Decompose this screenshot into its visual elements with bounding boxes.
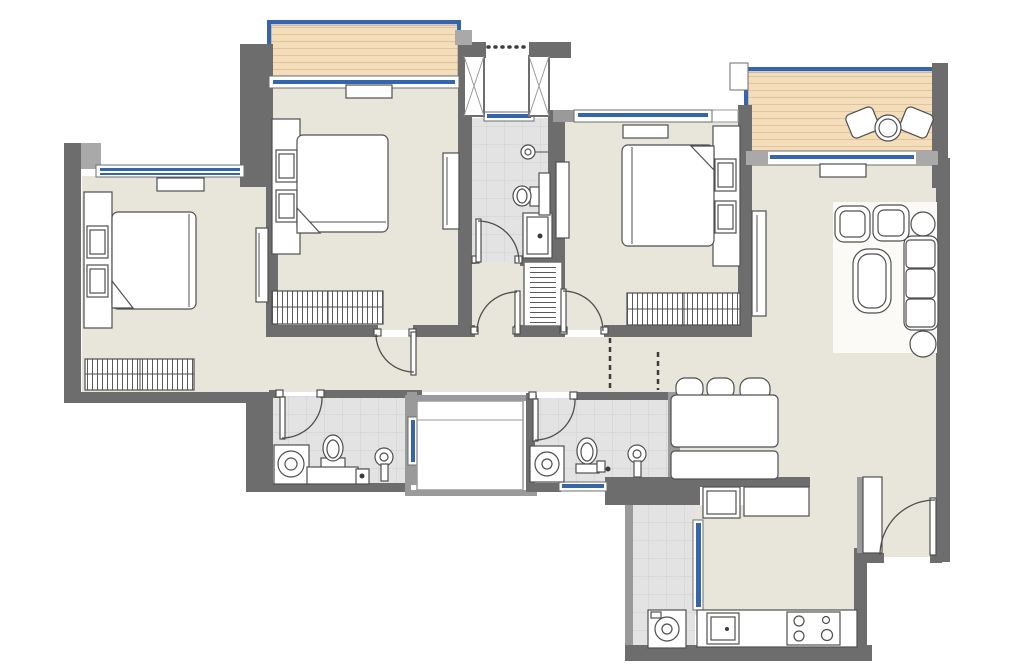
bedroom1-window-glass bbox=[100, 168, 240, 171]
hallway-floor bbox=[266, 337, 612, 392]
kitchen-sink-drain bbox=[725, 627, 729, 631]
door-jamb-bedroom2-a bbox=[374, 329, 381, 336]
bedroom1-headboard-ledge bbox=[157, 178, 204, 191]
centerbox-bottom-wall bbox=[405, 490, 537, 496]
right-bathroom-window-glass bbox=[562, 484, 604, 488]
coffee-table bbox=[853, 249, 891, 313]
door-jamb-bedroom3-b bbox=[601, 327, 608, 334]
right-bath-toilet-tank bbox=[576, 464, 599, 473]
left-bath-counter bbox=[307, 467, 358, 484]
leftbath-door-leaf bbox=[280, 397, 285, 439]
bedroom1-window-glass2 bbox=[100, 173, 240, 175]
door-jamb-leftbath-b bbox=[317, 390, 324, 397]
left-bathroom-west-wall bbox=[246, 392, 273, 490]
balcony2-railing-top bbox=[744, 67, 936, 71]
bedroom2-bed-platform bbox=[272, 119, 300, 254]
balcony2-left-stub bbox=[730, 63, 748, 90]
kitchen-hob bbox=[787, 612, 840, 645]
bedroom2-south-wall bbox=[266, 325, 378, 337]
left-bath-side-box-dot bbox=[360, 474, 365, 479]
balcony1-right-pillar bbox=[455, 30, 472, 45]
bedroom1-south-wall bbox=[64, 392, 248, 403]
kitchen-floor bbox=[695, 505, 857, 615]
centerbox-glass bbox=[411, 420, 415, 462]
living-window-ledge bbox=[820, 164, 866, 177]
dining-bench bbox=[671, 451, 778, 479]
kitchen-north-wall-block bbox=[605, 477, 700, 505]
bedroom3-headboard-ledge bbox=[623, 125, 668, 138]
balcony1-wood-floor bbox=[271, 25, 458, 78]
bedroom3-door-leaf bbox=[561, 289, 566, 332]
utility-washing-machine bbox=[648, 610, 686, 648]
bedroom2-tall-cabinet bbox=[443, 153, 459, 229]
bedroom3-south-wall bbox=[604, 325, 752, 337]
foyer-shoe-cabinet bbox=[863, 477, 882, 553]
right-bathroom-north-wall bbox=[573, 392, 675, 400]
right-bath-sink-pedestal bbox=[634, 461, 641, 477]
bedroom3-lintel bbox=[710, 110, 738, 122]
bedroom3-window-glass bbox=[578, 113, 708, 117]
bedroom1-door-panel bbox=[256, 228, 268, 302]
living-east-wall bbox=[936, 158, 950, 562]
door-jamb-rightbath-b bbox=[570, 392, 577, 399]
bedroom3-window-west-stub bbox=[553, 110, 576, 122]
sofa bbox=[904, 236, 938, 330]
floor-plan bbox=[0, 0, 1017, 670]
shaft-window-glass bbox=[487, 114, 531, 118]
refrigerator bbox=[703, 487, 740, 518]
bedroom2-bed bbox=[297, 135, 388, 232]
balcony1-railing-top bbox=[267, 20, 461, 24]
top-bath-vanity-tap bbox=[538, 234, 543, 239]
right-bathroom-south-wall-a bbox=[526, 483, 561, 492]
top-bath-counter bbox=[539, 173, 550, 215]
rightbath-door-leaf bbox=[533, 399, 538, 441]
bedroom1-bed-platform bbox=[84, 192, 112, 328]
left-bath-toilet-bowl bbox=[323, 435, 343, 461]
main-entry-door-leaf bbox=[930, 498, 936, 555]
living-window-glass bbox=[770, 155, 914, 159]
bedroom3-tall-cabinet bbox=[556, 162, 569, 238]
utility-west-wall bbox=[625, 505, 633, 647]
dining-table bbox=[671, 395, 778, 447]
right-bath-accessory bbox=[597, 461, 605, 472]
tv-unit bbox=[752, 211, 766, 316]
right-bath-sink bbox=[628, 445, 646, 463]
stair-shaft-rungs bbox=[530, 264, 556, 324]
lobby-door-leaf bbox=[515, 291, 520, 334]
right-bath-accessory-dot bbox=[606, 467, 611, 472]
left-bath-sink-pedestal bbox=[381, 464, 388, 481]
bedroom2-window-glass bbox=[273, 80, 455, 84]
floor-plan-drawing bbox=[0, 0, 1017, 670]
door-jamb-leftbath-a bbox=[276, 390, 283, 397]
right-bath-toilet-bowl bbox=[577, 438, 597, 464]
kitchen-sink bbox=[707, 613, 739, 644]
entry-south-wall-a bbox=[866, 553, 884, 563]
bedroom3-bed-platform bbox=[713, 126, 740, 266]
side-table-top bbox=[911, 212, 935, 236]
bedroom1-bed bbox=[112, 212, 196, 309]
bedroom1-bedroom2-wall bbox=[240, 44, 273, 187]
bedroom3-bed bbox=[622, 145, 714, 246]
centerbox-top-wall bbox=[411, 395, 537, 401]
bedroom2-headboard-ledge bbox=[346, 85, 392, 98]
kitchen-upper-counter bbox=[744, 487, 809, 516]
bedroom2-door-leaf bbox=[411, 332, 416, 375]
utility-sliding-door-glass bbox=[696, 523, 701, 607]
centerbox-body bbox=[417, 401, 523, 490]
side-table-bottom bbox=[910, 331, 936, 357]
topbath-door-leaf bbox=[476, 219, 481, 262]
door-jamb-rightbath-a bbox=[529, 392, 536, 399]
left-bath-sink bbox=[375, 448, 393, 466]
living-window-stub-right bbox=[916, 151, 938, 165]
top-bath-sink bbox=[521, 145, 535, 159]
living-window-stub-left bbox=[746, 151, 768, 165]
west-exterior-wall bbox=[64, 143, 81, 403]
